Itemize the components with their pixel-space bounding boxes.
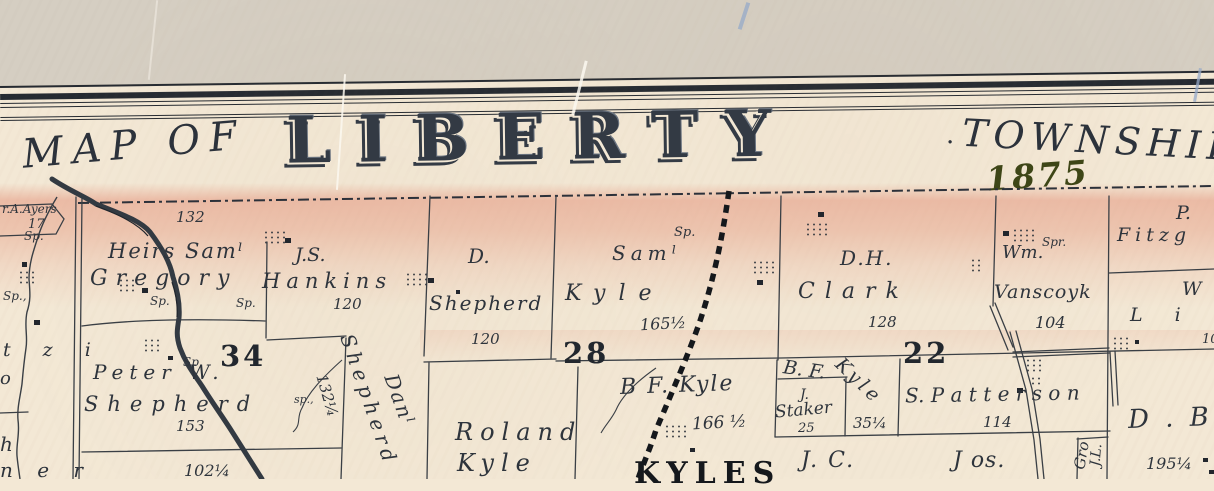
grid-line-vertical (427, 363, 429, 479)
building-symbol (818, 212, 824, 217)
parcel-dshepherd-name2: Shepherd (429, 293, 543, 313)
spring-marker: Spr. (1042, 236, 1066, 248)
grid-line-horizontal (0, 412, 28, 413)
parcel-hankins-acreage: 120 (333, 297, 362, 312)
orchard-symbol (18, 270, 34, 285)
grid-top-section-line (78, 186, 1214, 203)
grid-line-horizontal (1109, 269, 1214, 273)
spring-marker: sp., (294, 394, 314, 405)
parcel-vanscoyk-name2: Vanscoyk (994, 283, 1092, 302)
orchard-symbol (263, 230, 288, 245)
map-screenshot: { "frame": { "title_prefix": "MAP OF", "… (0, 0, 1214, 479)
parcel-jc-name: J. C. (801, 450, 855, 472)
parcel-bfkyle28-name: B F. Kyle (620, 373, 735, 399)
spring-marker: Sp. (24, 230, 44, 242)
grid-line-horizontal (1077, 437, 1108, 439)
edge-fragment: h (0, 434, 13, 454)
parcel-vanscoyk-name1: Wm. (1002, 244, 1043, 262)
grid-line-vertical (898, 359, 900, 436)
building-symbol (1003, 231, 1009, 236)
parcel-linn-name2: L i n (1130, 306, 1214, 325)
orchard-symbol (752, 260, 774, 275)
parcel-linn-acreage: 10 (1202, 333, 1214, 346)
parcel-staker-acreage: 25 (798, 422, 815, 435)
orchard-symbol (405, 272, 427, 287)
parcel-gregory-name2: Gregory (90, 268, 237, 290)
grid-line-vertical (845, 378, 846, 436)
section-number-34: 34 (220, 342, 266, 371)
parcel-gregory-acreage: 132 (176, 210, 205, 225)
parcel-dbe-acreage: 195¼ (1146, 456, 1192, 472)
edge-fragment: n e r (0, 460, 92, 480)
parcel-bfkyle28-acreage: 166 ½ (692, 414, 747, 434)
parcel-rolandkyle-name1: Roland (455, 420, 582, 444)
building-symbol (34, 320, 40, 325)
orchard-symbol (1012, 228, 1037, 243)
orchard-symbol (970, 258, 982, 273)
orchard-symbol (1025, 358, 1041, 373)
parcel-rolandkyle-name2: Kyle (457, 451, 537, 475)
parcel-linn-name1: W (1182, 280, 1202, 299)
parcel-gregory-name1: Heirs Samˡ (108, 241, 245, 262)
building-symbol (1203, 458, 1208, 462)
section-number-22: 22 (903, 339, 949, 368)
parcel-dshepherd-name1: D. (468, 246, 490, 266)
orchard-symbol (1112, 336, 1130, 351)
orchard-symbol (664, 424, 686, 439)
grid-line-horizontal (424, 359, 556, 362)
parcel-hankins-name2: Hankins (262, 271, 392, 292)
edge-fragment: t z i (3, 341, 104, 360)
parcel-vanscoyk-acreage: 104 (1035, 315, 1066, 331)
parcel-pwshepherd-name2: Shepherd (84, 394, 259, 415)
section-number-28: 28 (563, 339, 609, 368)
parcel-pwshepherd-acreage: 153 (176, 419, 205, 434)
parcel-patterson-name: S. P a t t e r s o n (905, 382, 1080, 405)
parcel-clark-acreage: 128 (868, 315, 897, 330)
parcel-samkyle-name2: Kyle (565, 283, 665, 305)
building-symbol (1209, 470, 1214, 474)
spring-marker: Sp. (150, 295, 170, 307)
parcel-clark-name2: Clark (798, 281, 909, 303)
edge-fragment: o (0, 370, 11, 388)
parcel-pwshepherd-name1: Peter W. (93, 362, 225, 382)
parcel-patterson-acreage: 114 (983, 415, 1012, 430)
parcel-dbe-name: D . B e (1128, 403, 1214, 433)
parcel-fitzgerald-name2: Fitzg (1117, 226, 1191, 245)
spring-marker: Sp., (3, 290, 27, 302)
parcel-fitzgerald-name1: P. (1176, 204, 1191, 223)
building-symbol (428, 278, 434, 283)
grid-line-vertical (778, 196, 781, 360)
building-symbol (22, 262, 27, 267)
building-symbol (690, 448, 695, 452)
parcel-clark-name1: D.H. (840, 248, 893, 268)
parcel-ayers-name: r.A.Ayers (2, 203, 57, 215)
parcel-dshepherd-acreage: 120 (471, 332, 500, 347)
station-label-kyles: KYLES (634, 459, 781, 489)
grid-line-horizontal (82, 448, 341, 452)
building-symbol (1135, 340, 1139, 344)
orchard-symbol (805, 222, 830, 237)
building-symbol (757, 280, 763, 285)
grid-line-vertical (73, 197, 82, 479)
creek-main (52, 179, 262, 479)
grid-line-vertical (775, 360, 777, 437)
orchard-symbol (143, 338, 163, 353)
parcel-samkyle-name1: Samˡ (612, 243, 681, 263)
spring-marker: Sp. (674, 226, 695, 239)
parcel-hankins-name1: J.S. (295, 246, 326, 265)
parcel-bfkyle22-acreage: 35¼ (853, 416, 887, 431)
spring-marker: Sp. (236, 297, 256, 309)
parcel-jos-name: J os. (953, 450, 1005, 472)
parcel-boundary-curved (82, 320, 265, 326)
grid-line-horizontal (775, 431, 1110, 437)
parcel-samkyle-acreage: 165½ (640, 315, 687, 333)
parcel-staker-name2: Staker (774, 400, 832, 422)
parcel-south-acreage: 102¼ (184, 463, 230, 479)
grid-line-vertical (551, 196, 556, 358)
